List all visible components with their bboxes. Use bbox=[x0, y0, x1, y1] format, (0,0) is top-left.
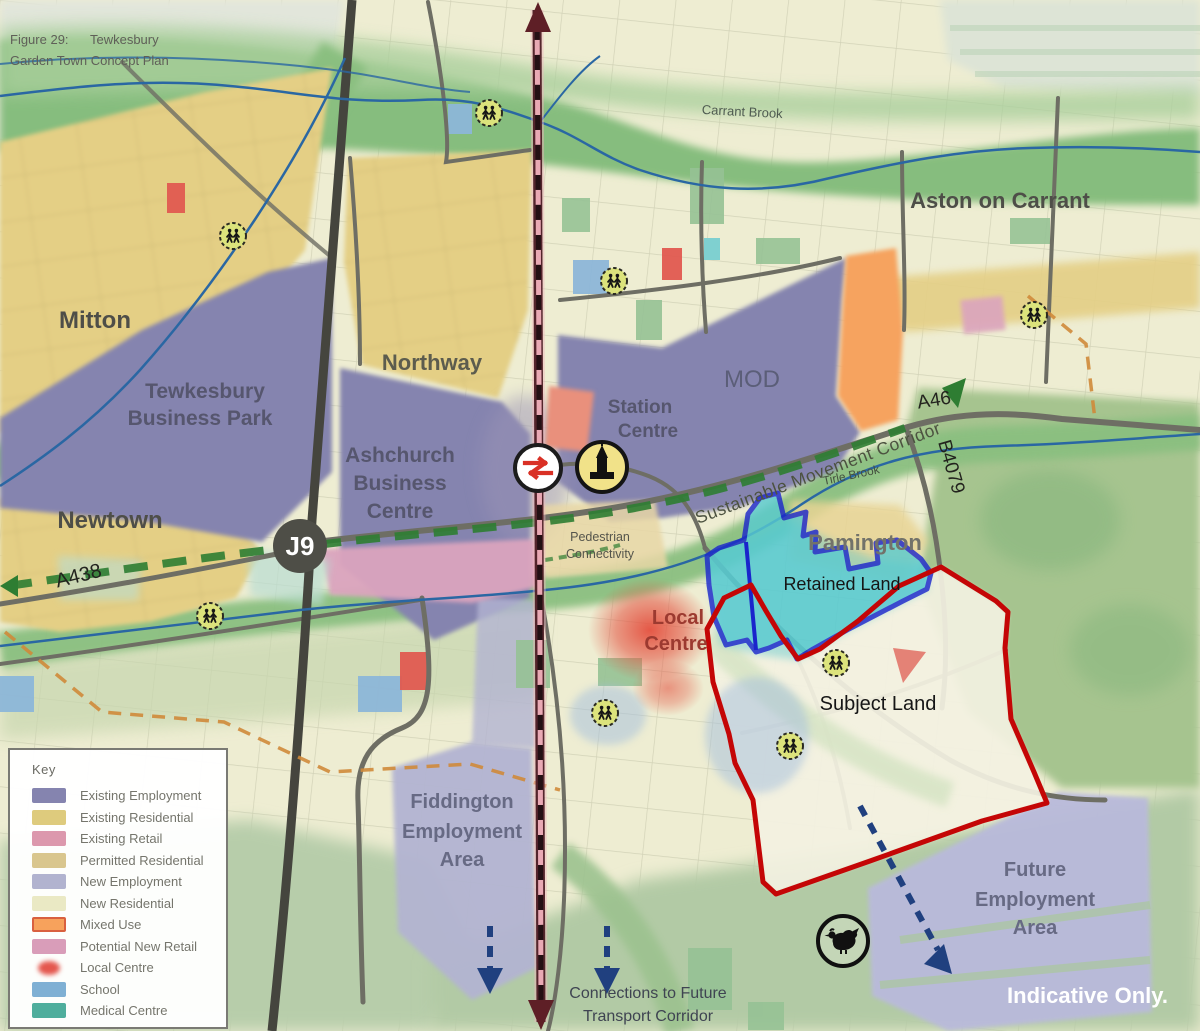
legend-swatch-potential-new-retail bbox=[32, 939, 66, 954]
legend-swatch-permitted-residential bbox=[32, 853, 66, 868]
legend-item: New Residential bbox=[32, 893, 226, 915]
label-tewkesbury-bp-2: Business Park bbox=[128, 407, 273, 430]
legend-title: Key bbox=[32, 762, 226, 777]
hen-icon bbox=[818, 916, 868, 966]
label-northway: Northway bbox=[382, 350, 483, 375]
school-crossing-icon bbox=[777, 733, 803, 759]
legend-item: Existing Employment bbox=[32, 785, 226, 807]
school-crossing-icon bbox=[1021, 302, 1047, 328]
legend-swatch-mixed-use bbox=[32, 917, 66, 932]
legend-panel: Key Existing Employment Existing Residen… bbox=[8, 748, 228, 1029]
area-mixed-use bbox=[838, 248, 903, 431]
figure-caption-line2: Garden Town Concept Plan bbox=[10, 53, 169, 68]
school-crossing-icon bbox=[823, 650, 849, 676]
legend-item: Mixed Use bbox=[32, 914, 226, 936]
label-indicative-only: Indicative Only. bbox=[1007, 983, 1168, 1008]
legend-label: Local Centre bbox=[80, 960, 154, 975]
legend-swatch-existing-retail bbox=[32, 831, 66, 846]
j9-junction-badge: J9 bbox=[273, 519, 327, 573]
label-tewkesbury-bp-1: Tewkesbury bbox=[145, 380, 265, 403]
label-future-3: Area bbox=[1013, 917, 1058, 939]
legend-label: Existing Retail bbox=[80, 831, 162, 846]
legend-label: Existing Residential bbox=[80, 810, 193, 825]
legend-swatch-local-centre bbox=[38, 961, 60, 975]
label-pedestrian-2: Connectivity bbox=[566, 547, 635, 561]
legend-item: New Employment bbox=[32, 871, 226, 893]
label-mitton: Mitton bbox=[59, 307, 131, 334]
concept-plan-map: J9 Mitton Tewkesbury Business bbox=[0, 0, 1200, 1031]
legend-label: School bbox=[80, 982, 120, 997]
label-fiddington-3: Area bbox=[440, 849, 485, 871]
legend-label: Mixed Use bbox=[80, 917, 141, 932]
figure-caption: Figure 29: Tewkesbury Garden Town Concep… bbox=[10, 30, 169, 72]
church-icon bbox=[577, 441, 627, 492]
legend-item: Permitted Residential bbox=[32, 850, 226, 872]
legend-item: School bbox=[32, 979, 226, 1001]
local-centre-blob-tail bbox=[632, 660, 704, 716]
legend-item: Local Centre bbox=[32, 957, 226, 979]
green-patch bbox=[1070, 605, 1190, 695]
school-crossing-icon bbox=[197, 603, 223, 629]
legend-item: Existing Residential bbox=[32, 807, 226, 829]
legend-label: Existing Employment bbox=[80, 788, 201, 803]
legend-label: New Residential bbox=[80, 896, 174, 911]
label-fiddington-2: Employment bbox=[402, 821, 522, 843]
label-ashchurch-3: Centre bbox=[367, 500, 434, 523]
label-pedestrian-1: Pedestrian bbox=[570, 530, 630, 544]
green-patch bbox=[980, 470, 1120, 570]
label-retained-land: Retained Land bbox=[783, 574, 900, 594]
legend-swatch-existing-employment bbox=[32, 788, 66, 803]
label-ashchurch-2: Business bbox=[353, 472, 446, 495]
label-station-1: Station bbox=[608, 397, 672, 418]
legend-swatch-school bbox=[32, 982, 66, 997]
legend-item: Existing Retail bbox=[32, 828, 226, 850]
legend-item: Potential New Retail bbox=[32, 936, 226, 958]
school-crossing-icon bbox=[601, 268, 627, 294]
j9-label: J9 bbox=[286, 531, 315, 561]
label-subject-land: Subject Land bbox=[820, 693, 937, 715]
label-local-centre-2: Centre bbox=[644, 633, 707, 655]
label-connections-2: Transport Corridor bbox=[583, 1008, 714, 1025]
legend-swatch-medical-centre bbox=[32, 1003, 66, 1018]
parcel-salmon-station bbox=[545, 386, 594, 452]
legend-label: Medical Centre bbox=[80, 1003, 167, 1018]
school-crossing-icon bbox=[220, 223, 246, 249]
figure-caption-line1: Figure 29: Tewkesbury bbox=[10, 32, 159, 47]
label-future-2: Employment bbox=[975, 889, 1095, 911]
label-future-1: Future bbox=[1004, 859, 1066, 881]
legend-item: Medical Centre bbox=[32, 1000, 226, 1022]
label-fiddington-1: Fiddington bbox=[410, 791, 513, 813]
legend-swatch-new-employment bbox=[32, 874, 66, 889]
legend-label: Permitted Residential bbox=[80, 853, 204, 868]
school-crossing-icon bbox=[592, 700, 618, 726]
label-mod: MOD bbox=[724, 366, 780, 393]
label-pamington: Pamington bbox=[808, 530, 922, 555]
label-aston: Aston on Carrant bbox=[910, 188, 1090, 213]
rail-station-icon bbox=[515, 445, 561, 491]
parcel-pink-east bbox=[960, 296, 1005, 334]
label-newtown: Newtown bbox=[57, 507, 162, 534]
label-local-centre-1: Local bbox=[652, 607, 704, 629]
legend-swatch-existing-residential bbox=[32, 810, 66, 825]
legend-label: New Employment bbox=[80, 874, 182, 889]
label-connections-1: Connections to Future bbox=[569, 985, 727, 1002]
label-station-2: Centre bbox=[618, 421, 678, 442]
cyan-parcel-mod bbox=[704, 238, 720, 260]
legend-label: Potential New Retail bbox=[80, 939, 197, 954]
label-ashchurch-1: Ashchurch bbox=[345, 444, 455, 467]
legend-swatch-new-residential bbox=[32, 896, 66, 911]
